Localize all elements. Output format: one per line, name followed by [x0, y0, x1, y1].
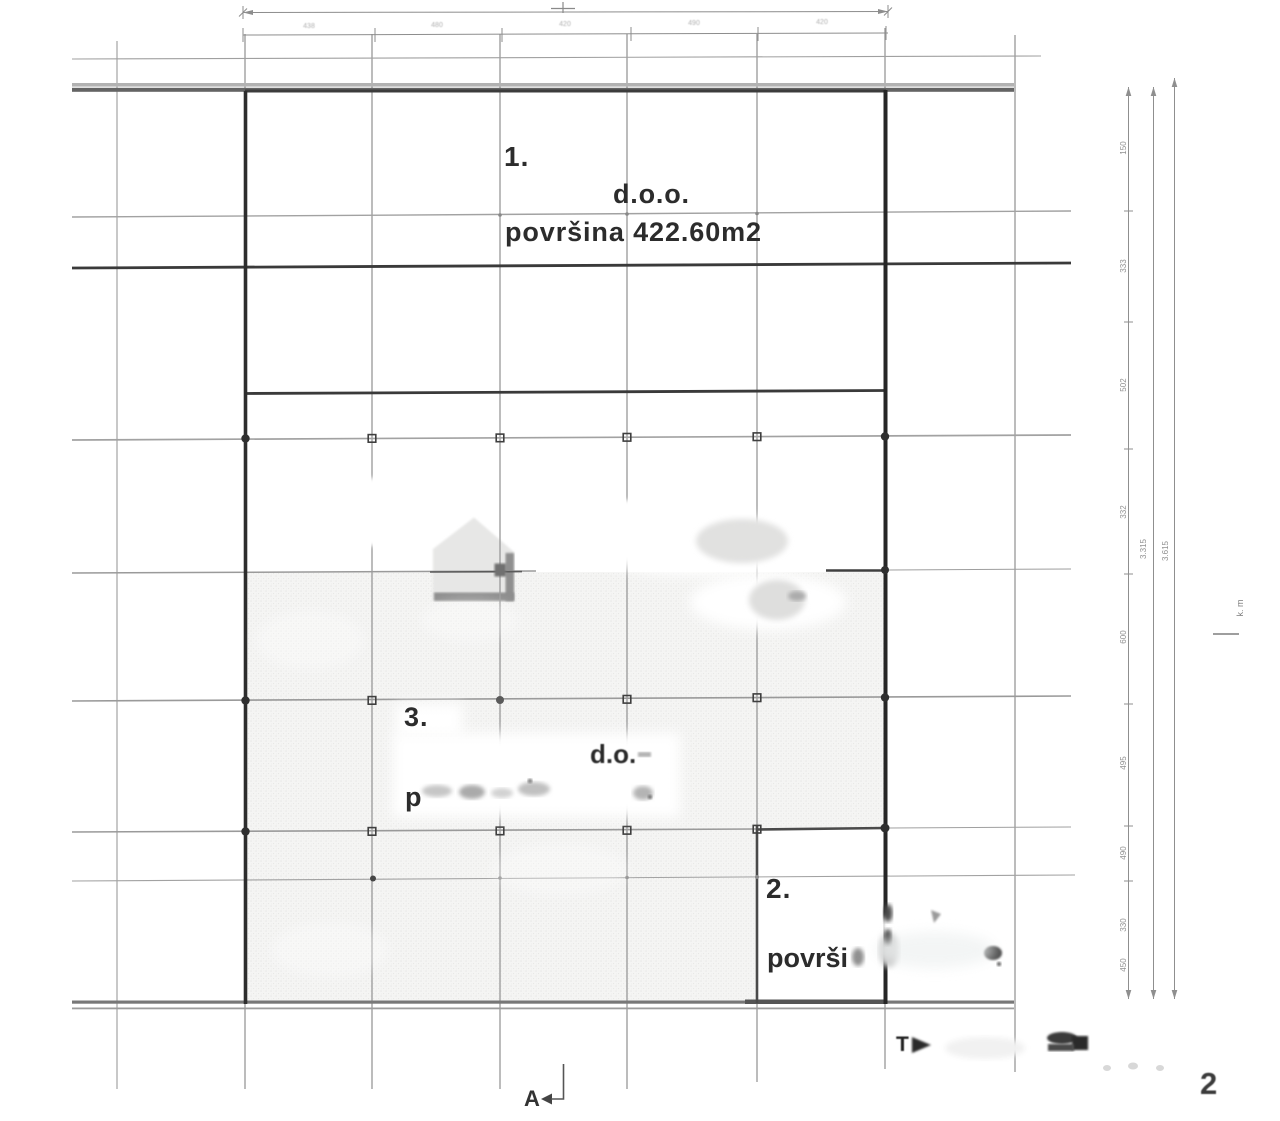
svg-text:T: T	[896, 1033, 909, 1056]
svg-text:150: 150	[1119, 141, 1128, 155]
svg-text:450: 450	[1119, 958, 1128, 972]
svg-text:k. m: k. m	[1235, 600, 1245, 617]
svg-text:490: 490	[688, 20, 700, 27]
svg-text:d.o.o.: d.o.o.	[613, 179, 690, 209]
svg-text:600: 600	[1119, 630, 1128, 644]
svg-text:3.615: 3.615	[1161, 540, 1170, 561]
svg-text:2.: 2.	[766, 873, 791, 904]
svg-text:438: 438	[303, 23, 315, 30]
svg-text:p: p	[405, 782, 422, 812]
svg-text:d.o.: d.o.	[590, 739, 636, 769]
svg-text:502: 502	[1119, 378, 1128, 392]
svg-text:332: 332	[1119, 505, 1128, 519]
svg-text:2: 2	[1200, 1066, 1217, 1101]
svg-text:495: 495	[1119, 756, 1128, 770]
svg-text:330: 330	[1119, 918, 1128, 932]
svg-text:333: 333	[1119, 259, 1128, 273]
svg-text:površina 422.60m2: površina 422.60m2	[505, 217, 762, 247]
svg-text:490: 490	[1119, 846, 1128, 860]
svg-text:480: 480	[431, 22, 443, 29]
svg-text:1.: 1.	[504, 141, 529, 172]
svg-text:420: 420	[816, 19, 828, 26]
svg-text:420: 420	[559, 21, 571, 28]
svg-text:3.315: 3.315	[1139, 538, 1148, 559]
svg-text:3.: 3.	[404, 702, 429, 732]
svg-text:površi: površi	[767, 943, 848, 973]
svg-text:A: A	[524, 1086, 540, 1111]
